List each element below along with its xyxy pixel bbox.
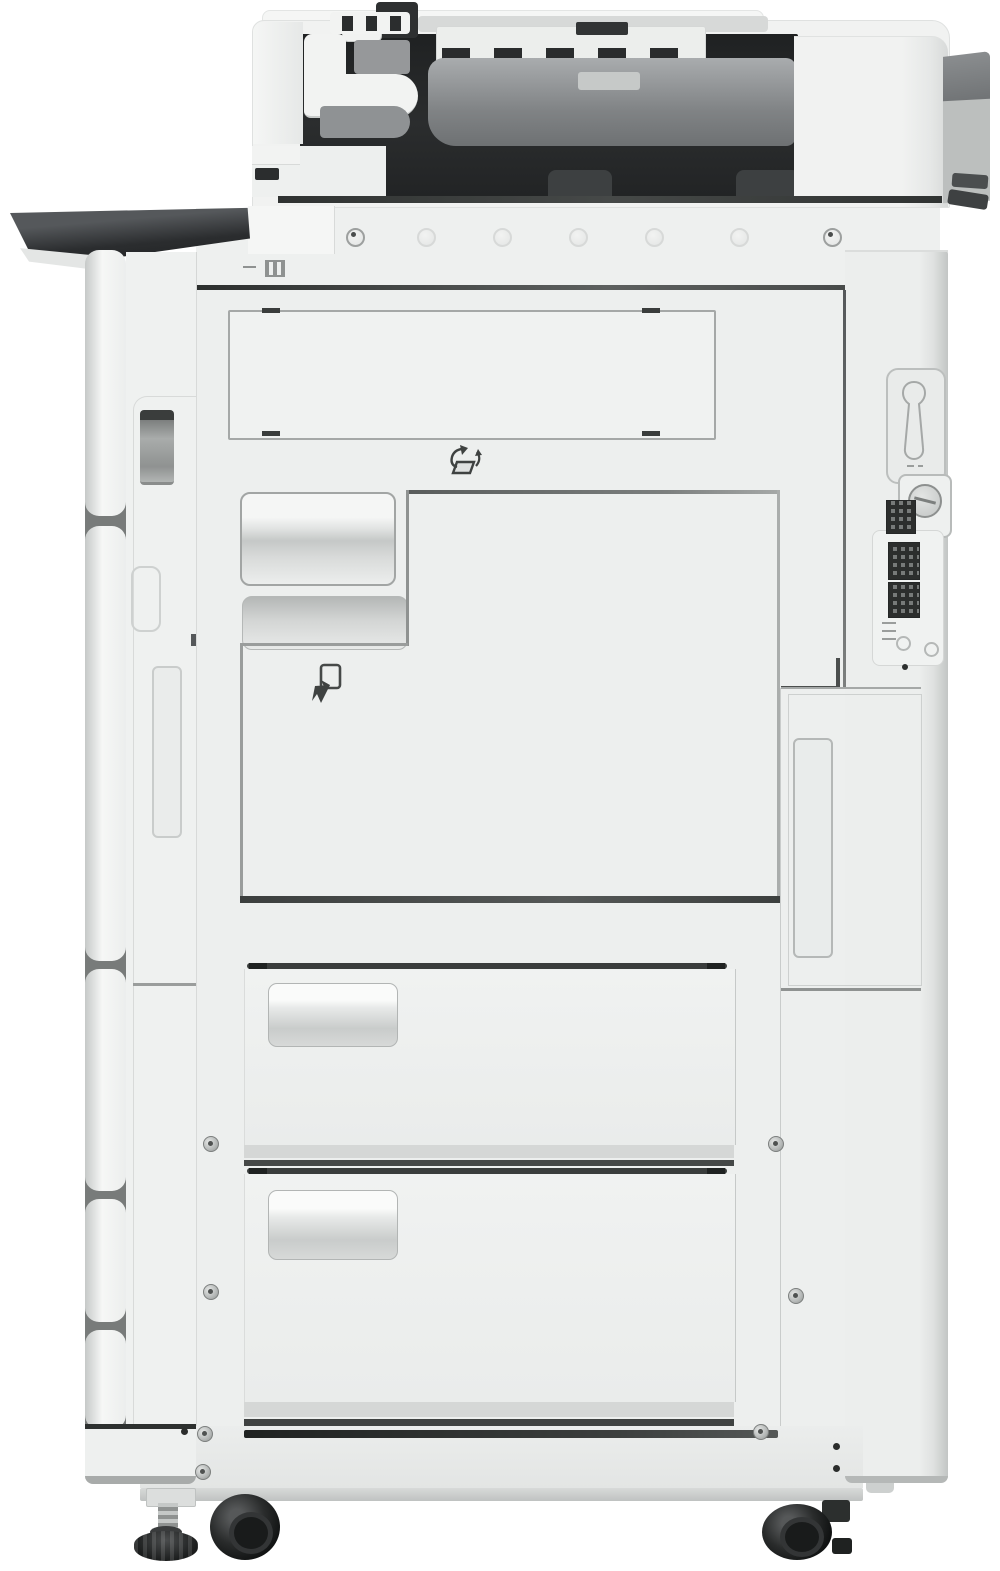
front-door-top-seam xyxy=(408,490,778,494)
tray1-handle xyxy=(268,983,398,1047)
screw xyxy=(768,1136,784,1152)
open-feed-icon xyxy=(444,444,488,482)
panel-tick xyxy=(262,308,280,313)
screw xyxy=(788,1288,804,1304)
left-tower-bottom-edge xyxy=(85,1476,196,1484)
paper-load-marks-icon xyxy=(243,260,293,274)
label-circle xyxy=(924,642,939,657)
nameplate-cap xyxy=(140,410,174,420)
adf-bottom-seam xyxy=(278,196,942,203)
adf-left-cap xyxy=(253,22,303,144)
base-shadow-strip xyxy=(244,1430,778,1438)
screw-circle xyxy=(493,228,512,247)
hinge-knuckle-slots xyxy=(342,16,404,31)
qr-label xyxy=(886,500,916,534)
tray2-bottom-lip xyxy=(244,1402,734,1417)
caster-right-hub xyxy=(780,1517,824,1557)
door-corner-step-v xyxy=(836,658,840,688)
panel-tick xyxy=(262,431,280,436)
tower-segment xyxy=(85,526,126,961)
screw-circle xyxy=(823,228,842,247)
tower-segment xyxy=(85,250,126,516)
pull-out-icon xyxy=(306,658,346,712)
caster-right-hook xyxy=(832,1538,852,1554)
right-side-seam-lower xyxy=(781,988,921,991)
hinge-gray-wedge xyxy=(354,40,410,74)
right-side-seam-upper xyxy=(781,687,921,689)
knob-knurl xyxy=(134,1531,198,1561)
adf-right-pillar xyxy=(794,36,948,207)
screw xyxy=(197,1426,213,1442)
screw xyxy=(203,1136,219,1152)
tray2-handle xyxy=(268,1190,398,1260)
qr-label xyxy=(888,542,920,580)
leveling-foot-knob xyxy=(134,1531,198,1561)
tower-segment xyxy=(85,969,126,1191)
adf-small-notch xyxy=(255,168,279,180)
cavity-tab-2 xyxy=(736,170,800,196)
left-inner-seam xyxy=(133,983,196,986)
screw xyxy=(203,1284,219,1300)
label-circle xyxy=(896,636,911,651)
upper-access-panel xyxy=(228,310,716,440)
lower-grip-notch xyxy=(242,596,408,650)
right-hairline xyxy=(780,688,781,1480)
qr-label xyxy=(888,582,920,618)
fastener-dot xyxy=(833,1465,840,1472)
key-slot-icon xyxy=(894,374,934,474)
right-column-hairline xyxy=(845,250,948,252)
left-small-outline xyxy=(131,566,161,632)
screw xyxy=(753,1424,769,1440)
left-recessed-strip xyxy=(152,666,182,838)
tray1-bottom-seam xyxy=(244,1160,734,1166)
cavity-tab-1 xyxy=(548,170,612,196)
fastener-dot xyxy=(181,1428,188,1435)
roller-handle xyxy=(578,72,640,90)
front-door-step-seam xyxy=(240,643,408,646)
guide-dark-rect xyxy=(576,22,628,35)
screw xyxy=(195,1464,211,1480)
mark-line xyxy=(243,266,256,268)
left-tower-bottom xyxy=(85,1429,196,1479)
screw-circle xyxy=(645,228,664,247)
panel-tick xyxy=(642,308,660,313)
panel-tick xyxy=(642,431,660,436)
toner-door-handle xyxy=(240,492,396,586)
left-inner-outline xyxy=(133,396,196,1458)
nameplate-badge xyxy=(140,420,174,485)
front-door-left-seam-upper xyxy=(406,490,409,646)
caster-left-hub xyxy=(229,1512,273,1554)
tower-segment xyxy=(85,1330,126,1429)
screw-circle xyxy=(417,228,436,247)
tray1-bottom-lip xyxy=(244,1145,734,1158)
label-text-lines xyxy=(882,622,896,644)
tray2-bottom-seam xyxy=(244,1419,734,1426)
screw-circle xyxy=(569,228,588,247)
shelf-sliver xyxy=(248,206,335,254)
lock-screw-slot xyxy=(914,496,936,504)
tower-segment xyxy=(85,1199,126,1322)
label-dot xyxy=(902,664,908,670)
front-door-bottom-seam xyxy=(240,896,780,903)
right-recessed-strip xyxy=(793,738,833,958)
fastener-dot xyxy=(833,1443,840,1450)
screw-circle xyxy=(346,228,365,247)
rear-hook-1 xyxy=(952,173,989,189)
left-tower xyxy=(85,250,126,1483)
front-door-left-seam-lower xyxy=(240,643,243,899)
screw-circle xyxy=(730,228,749,247)
column-divider xyxy=(843,290,846,688)
hinge-gray-under xyxy=(320,106,410,138)
printer-photo xyxy=(0,0,1000,1571)
right-column-foot xyxy=(866,1483,894,1493)
cavity-platform xyxy=(300,146,386,196)
right-column-bottom-edge xyxy=(845,1476,948,1483)
mark-bars xyxy=(265,260,285,277)
